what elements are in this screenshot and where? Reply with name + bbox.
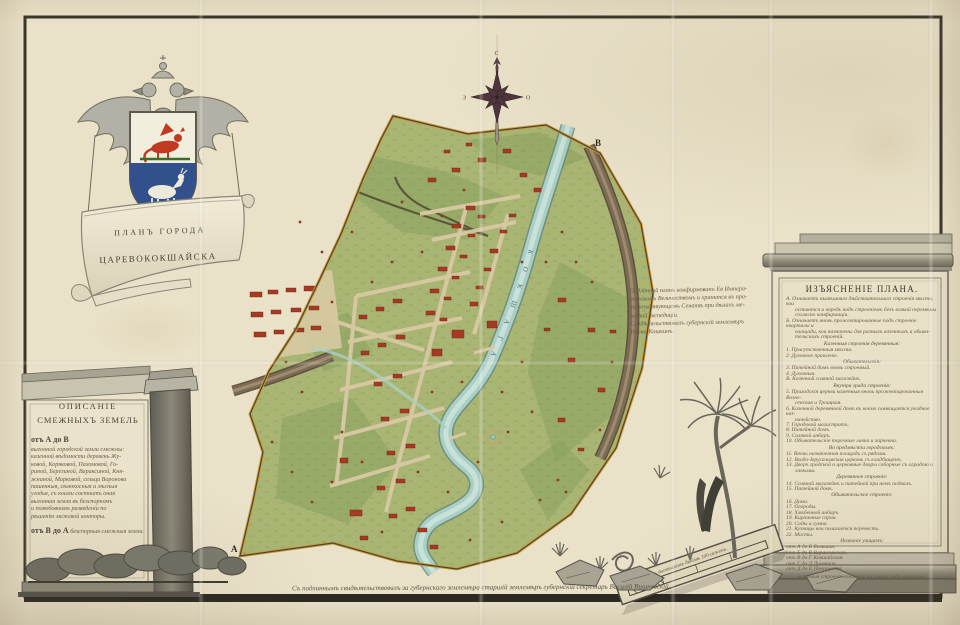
description-closing-line: безспорныя смежныя земли. — [70, 529, 144, 535]
description-title-line1: ОПИСАНІЕ — [31, 401, 145, 411]
certification-note: Подлинной планъ конфирмованъ Ея Импера-т… — [630, 284, 791, 337]
description-range-2: отъ В до А безспорныя смежныя земли. — [31, 526, 145, 535]
description-line: жниной, Марковой, сельца Воронова — [31, 477, 145, 484]
compass-west-label: З — [463, 96, 466, 102]
compass-north-label: С — [495, 51, 499, 57]
description-range-1: отъ А до В — [31, 429, 145, 447]
description-line: рѣшенію межевой конторы. — [31, 514, 145, 521]
legend-panel: ИЗЪЯСНЕНІЕ ПЛАНА. А. Означаетъ нынѣшняго… — [786, 284, 938, 580]
description-lines: выгонной городской земли смежны:казенной… — [31, 447, 145, 521]
description-title-line2: СМЕЖНЫХЪ ЗЕМЕЛЬ — [31, 415, 145, 425]
description-line: угодья, съ коими состоитъ оная — [31, 491, 145, 498]
description-line: казенной вѣдомости деревень Жу- — [31, 454, 145, 461]
range-label-1: отъ А до В — [31, 435, 69, 444]
boundary-letter-v: В — [595, 138, 601, 148]
map-sheet: { "cartouche": { "title_line1": "ПЛАНЪ Г… — [0, 0, 960, 625]
description-line: и полюбовномъ разведеніи по — [31, 506, 145, 513]
legend-line: 6. Казенной деревянной домъ въ коемъ пом… — [786, 407, 938, 418]
range-label-2: отъ В до А — [31, 526, 69, 535]
legend-line: Обывательское строеніе: — [786, 492, 938, 499]
boundary-letter-a: А — [231, 544, 238, 554]
description-panel: ОПИСАНІЕ СМЕЖНЫХЪ ЗЕМЕЛЬ отъ А до В выго… — [31, 401, 145, 535]
palm-fronds — [680, 378, 776, 436]
coat-of-arms — [72, 55, 255, 306]
legend-title: ИЗЪЯСНЕНІЕ ПЛАНА. — [786, 284, 938, 294]
compass-east-label: О — [526, 96, 531, 102]
city-plan: КОКШАГА — [230, 110, 660, 575]
legend-lines: А. Означаетъ нынѣшняго дѣйствительнаго с… — [786, 297, 938, 580]
description-line: риной, Березиной, Вараксиной, Кня- — [31, 469, 145, 476]
legend-line: всѣ оныя строенія означены на планѣ подъ… — [786, 573, 938, 580]
